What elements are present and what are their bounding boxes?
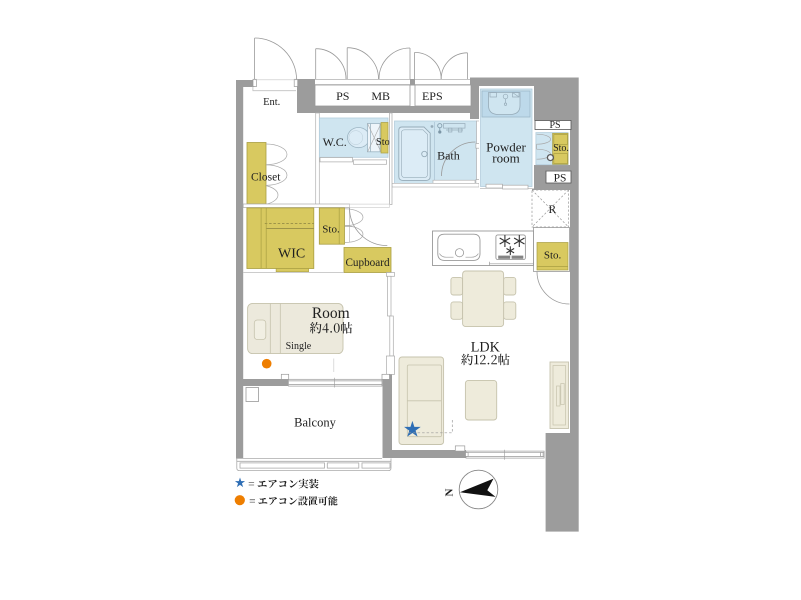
svg-text:Bath: Bath [437,148,460,162]
svg-text:Single: Single [286,341,312,352]
svg-text:PS: PS [549,120,560,131]
svg-text:Balcony: Balcony [294,416,336,430]
svg-text:WIC: WIC [278,247,305,262]
svg-text:room: room [492,151,519,166]
svg-text:EPS: EPS [422,89,443,103]
svg-text:LDK: LDK [471,339,501,355]
svg-text:W.C.: W.C. [323,135,347,149]
svg-text:N: N [444,488,456,496]
svg-text:Ent.: Ent. [263,97,280,108]
svg-text:PS: PS [336,89,349,103]
svg-text:R: R [548,204,556,216]
svg-text:Closet: Closet [251,172,281,184]
svg-text:Sto.: Sto. [322,224,340,236]
svg-text:MB: MB [371,89,390,103]
svg-text:Room: Room [312,305,350,322]
svg-text:Cupboard: Cupboard [345,257,390,269]
svg-text:Sto.: Sto. [553,143,569,154]
svg-text:Sto.: Sto. [544,249,562,261]
svg-text:PS: PS [554,172,567,184]
